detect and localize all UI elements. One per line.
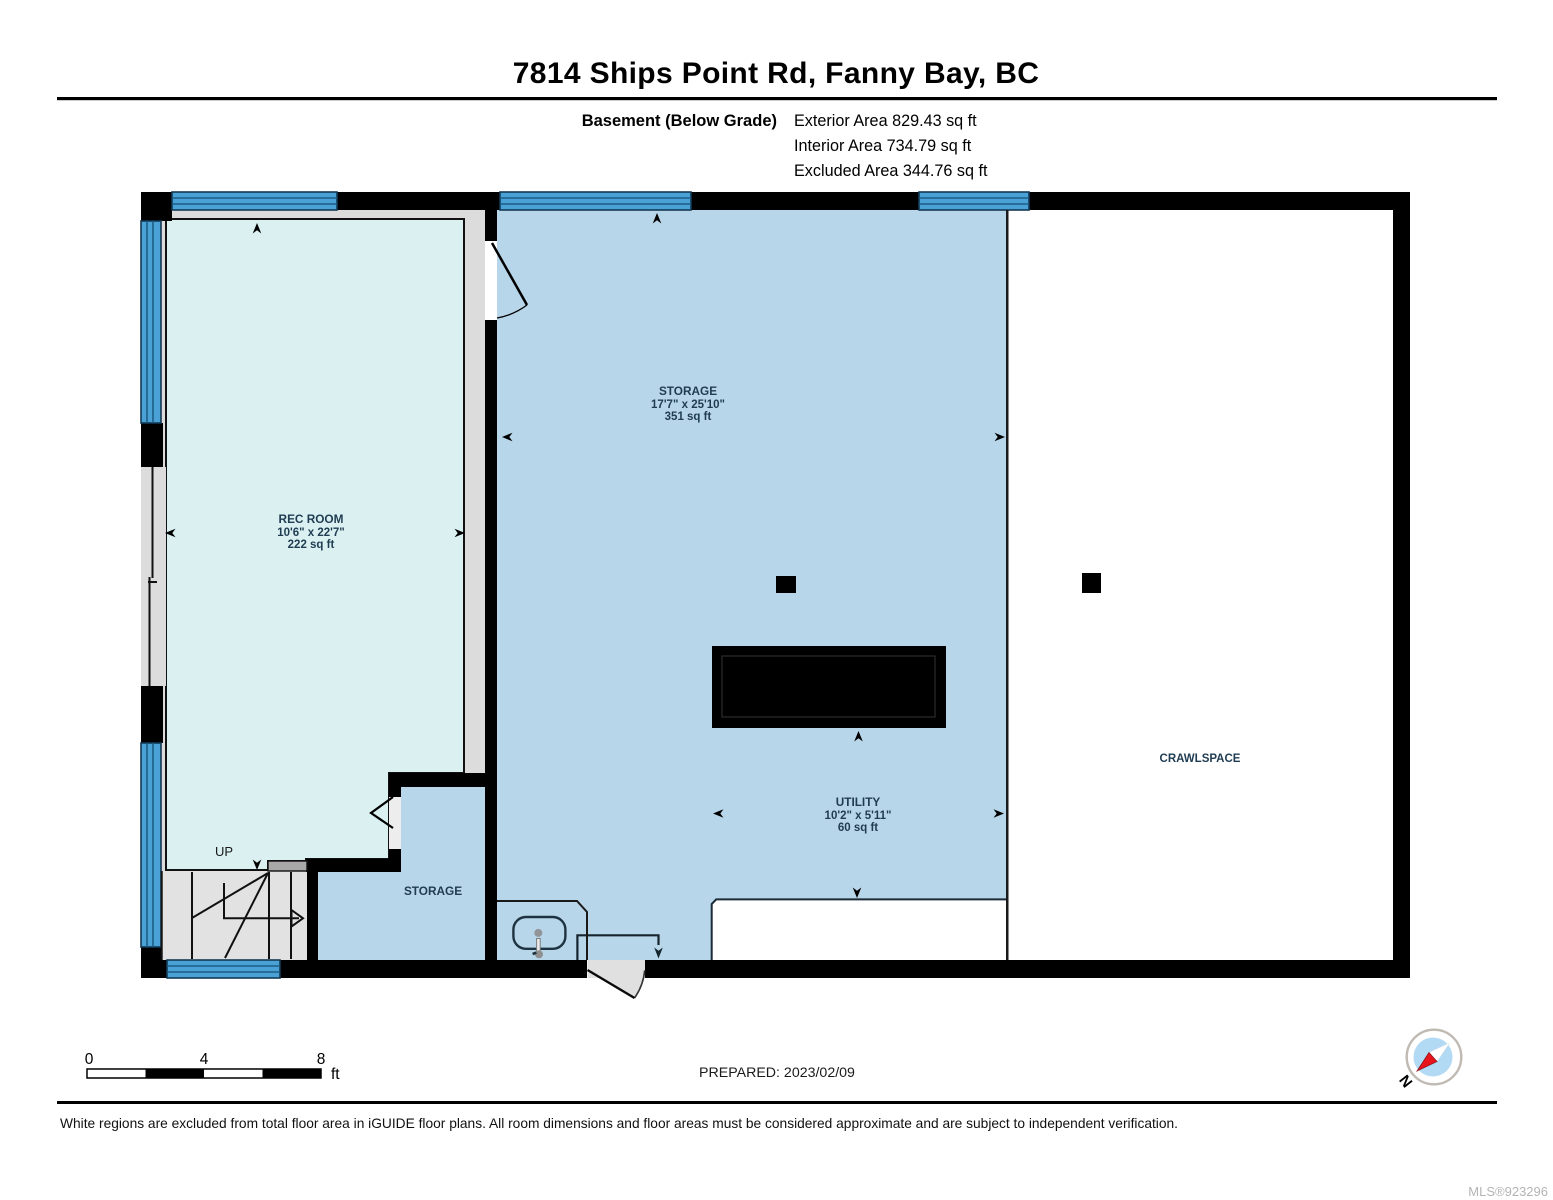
svg-text:REC ROOM: REC ROOM <box>279 512 344 526</box>
svg-text:351 sq ft: 351 sq ft <box>665 411 712 423</box>
svg-text:CRAWLSPACE: CRAWLSPACE <box>1160 753 1241 765</box>
svg-text:222 sq ft: 222 sq ft <box>288 539 335 551</box>
svg-text:STORAGE: STORAGE <box>659 384 717 398</box>
svg-text:Basement (Below Grade): Basement (Below Grade) <box>582 112 777 130</box>
svg-text:8: 8 <box>317 1051 326 1068</box>
svg-text:ft: ft <box>331 1066 340 1083</box>
svg-text:MLS®923296: MLS®923296 <box>1468 1184 1548 1199</box>
svg-text:Excluded Area 344.76 sq ft: Excluded Area 344.76 sq ft <box>794 162 988 180</box>
svg-text:10'2" x 5'11": 10'2" x 5'11" <box>825 810 892 822</box>
svg-text:UTILITY: UTILITY <box>836 795 881 809</box>
svg-text:Interior Area 734.79 sq ft: Interior Area 734.79 sq ft <box>794 137 972 155</box>
svg-text:4: 4 <box>200 1051 209 1068</box>
svg-text:60 sq ft: 60 sq ft <box>838 822 878 834</box>
svg-text:7814 Ships Point Rd, Fanny Bay: 7814 Ships Point Rd, Fanny Bay, BC <box>513 57 1039 90</box>
svg-text:17'7" x 25'10": 17'7" x 25'10" <box>651 399 725 411</box>
svg-text:10'6" x 22'7": 10'6" x 22'7" <box>277 527 345 539</box>
svg-text:Exterior Area 829.43 sq ft: Exterior Area 829.43 sq ft <box>794 112 977 130</box>
svg-text:0: 0 <box>85 1051 94 1068</box>
svg-text:UP: UP <box>215 844 233 859</box>
svg-text:White regions are excluded fro: White regions are excluded from total fl… <box>60 1115 1178 1131</box>
svg-text:STORAGE: STORAGE <box>404 884 462 898</box>
svg-text:PREPARED: 2023/02/09: PREPARED: 2023/02/09 <box>699 1065 855 1081</box>
